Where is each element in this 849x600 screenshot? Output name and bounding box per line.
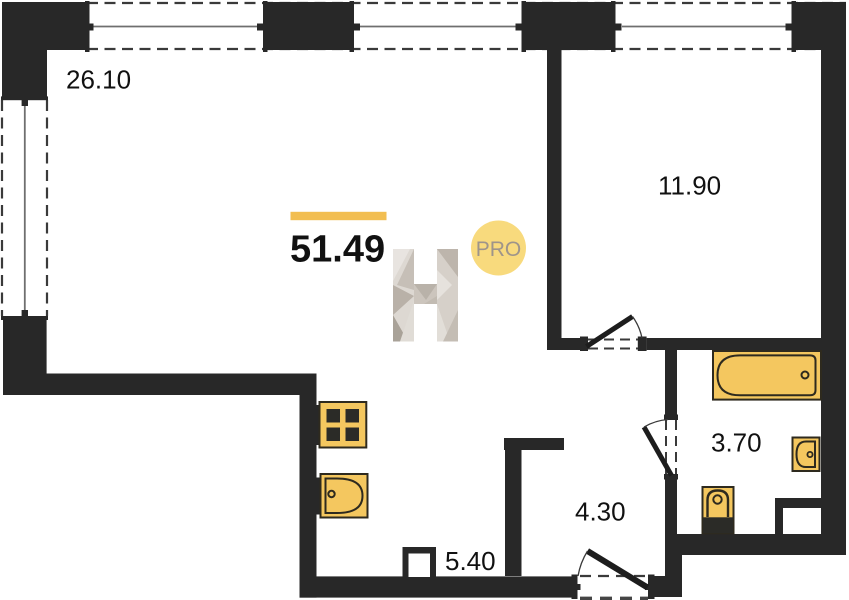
svg-text:26.10: 26.10 <box>66 65 131 95</box>
svg-text:51.49: 51.49 <box>290 229 385 271</box>
svg-text:5.40: 5.40 <box>445 546 496 576</box>
svg-text:3.70: 3.70 <box>711 428 762 458</box>
svg-text:11.90: 11.90 <box>658 171 721 201</box>
svg-text:4.30: 4.30 <box>575 497 626 527</box>
svg-text:PRO: PRO <box>476 238 522 261</box>
